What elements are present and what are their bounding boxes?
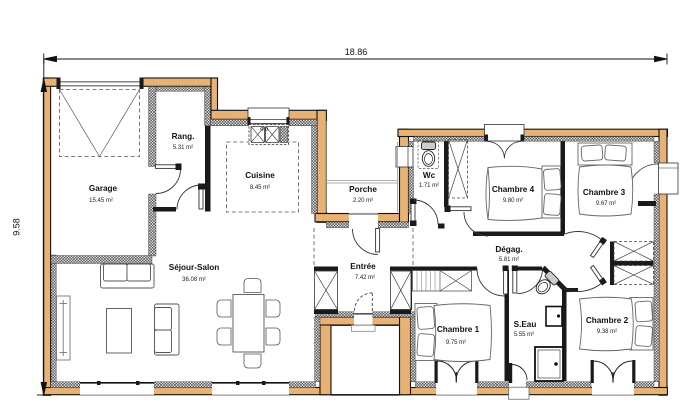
svg-text:9.75 m²: 9.75 m² bbox=[446, 340, 466, 346]
svg-text:5.55 m²: 5.55 m² bbox=[514, 332, 534, 338]
svg-text:5.31 m²: 5.31 m² bbox=[173, 145, 193, 151]
svg-text:1.71 m²: 1.71 m² bbox=[419, 183, 439, 189]
svg-text:9.80 m²: 9.80 m² bbox=[503, 198, 523, 204]
svg-text:9.38 m²: 9.38 m² bbox=[597, 329, 617, 335]
svg-text:5.81 m²: 5.81 m² bbox=[499, 257, 519, 263]
svg-text:8.45 m²: 8.45 m² bbox=[250, 185, 270, 191]
svg-text:S.Eau: S.Eau bbox=[514, 320, 537, 329]
svg-text:Chambre 2: Chambre 2 bbox=[586, 316, 629, 325]
svg-text:Rang.: Rang. bbox=[172, 132, 195, 141]
svg-text:Chambre 4: Chambre 4 bbox=[492, 185, 535, 194]
svg-text:36.08 m²: 36.08 m² bbox=[182, 277, 206, 283]
svg-text:Séjour-Salon: Séjour-Salon bbox=[169, 263, 220, 272]
svg-text:Garage: Garage bbox=[89, 184, 118, 193]
svg-text:Porche: Porche bbox=[349, 185, 377, 194]
svg-text:Chambre 1: Chambre 1 bbox=[437, 325, 480, 334]
svg-text:18.86: 18.86 bbox=[345, 47, 368, 57]
svg-text:15.45 m²: 15.45 m² bbox=[89, 198, 113, 204]
svg-text:9.58: 9.58 bbox=[12, 218, 22, 236]
svg-text:Cuisine: Cuisine bbox=[245, 171, 275, 180]
svg-text:Entrée: Entrée bbox=[350, 262, 376, 271]
svg-text:2.20 m²: 2.20 m² bbox=[353, 198, 373, 204]
svg-text:9.67 m²: 9.67 m² bbox=[596, 201, 616, 207]
svg-text:Chambre 3: Chambre 3 bbox=[583, 188, 626, 197]
svg-text:Wc: Wc bbox=[423, 171, 436, 180]
svg-text:7.42 m²: 7.42 m² bbox=[355, 275, 375, 281]
svg-text:Dégag.: Dégag. bbox=[495, 245, 522, 254]
